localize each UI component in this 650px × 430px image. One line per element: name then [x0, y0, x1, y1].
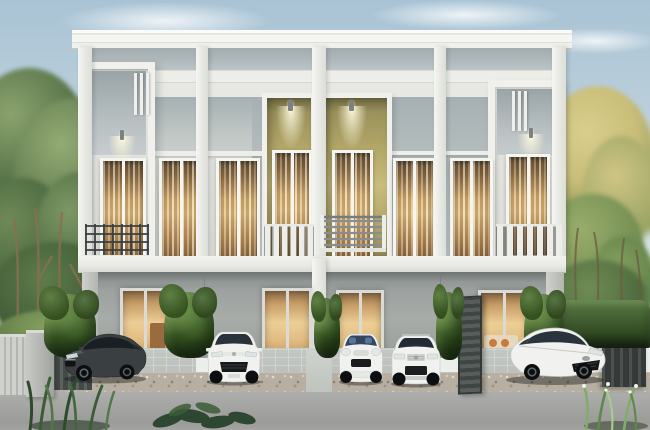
upper-window-6 [393, 158, 436, 260]
plant-grass-right [578, 378, 650, 430]
louvre-fin [524, 91, 527, 131]
downlight-fixture [288, 100, 293, 111]
cloud [370, 0, 560, 30]
plant-grass-left [24, 374, 124, 430]
townhouse-rendering [0, 0, 650, 430]
pilaster [434, 47, 446, 258]
balcony-railing-grid [84, 222, 150, 260]
upper-window-3 [216, 158, 260, 260]
louvre-fin [518, 91, 521, 131]
louvre-fin [140, 73, 143, 115]
downlight-fixture [349, 100, 354, 111]
downlight-fixture [529, 128, 533, 138]
plant-leaves-mid [150, 398, 260, 430]
vehicle-white-mini [336, 326, 386, 386]
vehicle-white-hatchback [204, 324, 264, 386]
wall-panel-grey [150, 97, 202, 155]
upper-window-7 [450, 158, 493, 260]
vehicle-white-sedan [502, 316, 608, 386]
pilaster [196, 47, 208, 258]
downlight-glow [276, 106, 306, 150]
vehicle-white-suv [388, 330, 444, 388]
string-course [150, 151, 268, 156]
louvre-fin [134, 73, 137, 115]
downlight-fixture [120, 130, 124, 140]
sofa-pillow [489, 339, 497, 347]
balcony-railing-bars [320, 214, 386, 252]
wall-panel-grey [208, 97, 252, 155]
downlight-glow [337, 106, 367, 150]
louvre-fin [512, 91, 515, 131]
louvre-fin [146, 73, 149, 115]
